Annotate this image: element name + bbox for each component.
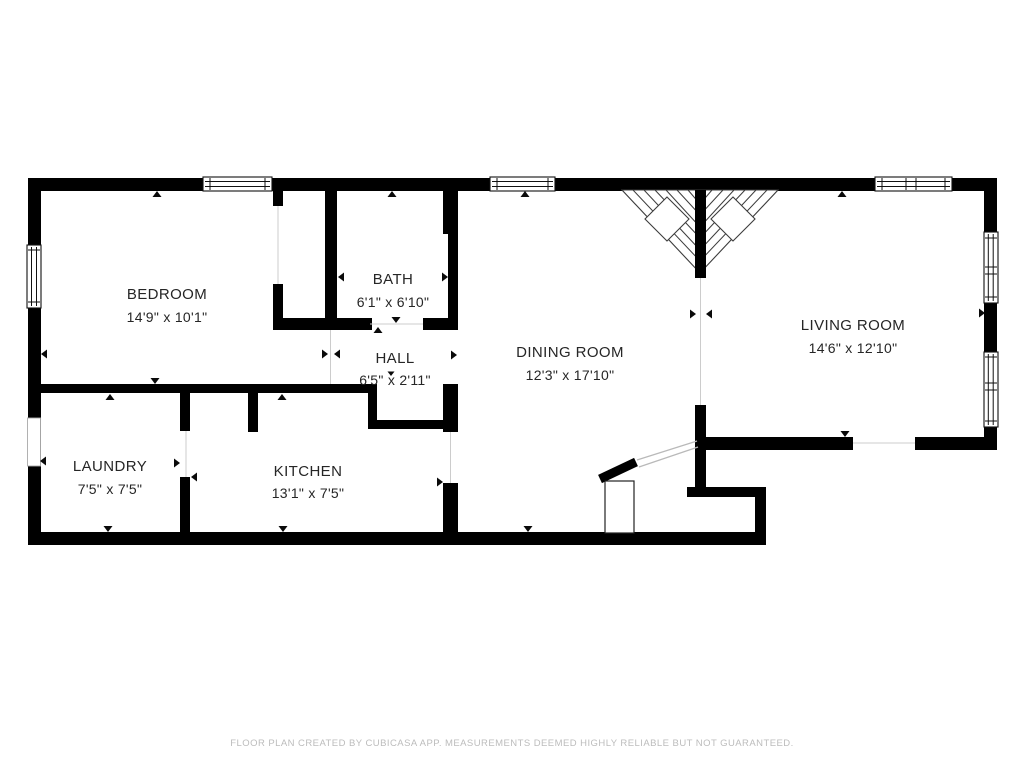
window-living-top <box>875 177 952 191</box>
dimension-arrow <box>374 327 383 333</box>
dimension-arrow <box>338 273 344 282</box>
dimension-arrow <box>278 394 287 400</box>
dimension-arrow <box>442 273 448 282</box>
room-dims: 13'1" x 7'5" <box>272 485 345 501</box>
wall <box>423 318 458 330</box>
wall <box>180 477 190 533</box>
room-dims: 6'5" x 2'11" <box>359 372 431 388</box>
wall <box>443 483 458 533</box>
room-dims: 6'1" x 6'10" <box>357 294 430 310</box>
dimension-arrow <box>191 473 197 482</box>
window-laundry-left <box>28 418 41 466</box>
room-name: LIVING ROOM <box>801 317 905 334</box>
floor-plan-drawing: BEDROOM 14'9" x 10'1" BATH 6'1" x 6'10" … <box>0 0 1024 768</box>
wall <box>273 318 372 330</box>
room-name: DINING ROOM <box>516 344 624 361</box>
room-name: BATH <box>373 271 414 288</box>
dimension-arrow <box>174 459 180 468</box>
dimension-arrow <box>322 350 328 359</box>
wall <box>448 233 458 319</box>
wall <box>325 188 337 330</box>
room-label-laundry: LAUNDRY 7'5" x 7'5" <box>73 458 147 497</box>
wall <box>695 437 853 450</box>
wall <box>443 384 458 432</box>
front-door <box>605 441 698 533</box>
staircase-right-flight <box>700 190 778 273</box>
dimension-arrow <box>392 317 401 323</box>
room-name: LAUNDRY <box>73 458 147 475</box>
room-dims: 12'3" x 17'10" <box>526 367 615 383</box>
dimension-arrow <box>521 191 530 197</box>
dimension-arrow <box>279 526 288 532</box>
wall <box>248 392 258 432</box>
dimension-arrow <box>437 478 443 487</box>
wall <box>755 487 766 538</box>
dimension-arrow <box>388 191 397 197</box>
dimension-arrow <box>106 394 115 400</box>
dimension-arrow <box>153 191 162 197</box>
dimension-arrow <box>41 350 47 359</box>
wall <box>28 178 41 545</box>
room-label-living-room: LIVING ROOM 14'6" x 12'10" <box>801 317 905 356</box>
wall <box>28 532 766 545</box>
room-name: HALL <box>375 350 414 367</box>
wall <box>600 462 636 479</box>
wall <box>28 384 373 393</box>
walls <box>28 178 997 545</box>
wall <box>273 188 283 206</box>
dimension-arrow <box>451 351 457 360</box>
window-bedroom-top <box>203 177 272 191</box>
room-name: BEDROOM <box>127 286 207 303</box>
staircase <box>622 190 778 278</box>
room-dims: 14'6" x 12'10" <box>809 340 898 356</box>
window-dining-top <box>490 177 555 191</box>
room-dims: 7'5" x 7'5" <box>78 481 143 497</box>
room-label-hall: HALL 6'5" x 2'11" <box>359 350 431 388</box>
door-leaf <box>605 481 634 533</box>
dimension-arrow <box>838 191 847 197</box>
window-living-right-upper <box>984 232 998 303</box>
dimension-arrow <box>524 526 533 532</box>
room-name: KITCHEN <box>274 463 343 480</box>
dimension-arrow <box>706 310 712 319</box>
dimension-arrow <box>151 378 160 384</box>
dimension-arrow <box>690 310 696 319</box>
dimension-arrow <box>841 431 850 437</box>
dimension-arrow <box>104 526 113 532</box>
room-label-kitchen: KITCHEN 13'1" x 7'5" <box>272 463 345 501</box>
window-bedroom-left <box>27 245 41 308</box>
wall <box>180 392 190 431</box>
staircase-left-flight <box>622 190 700 273</box>
footer-disclaimer: FLOOR PLAN CREATED BY CUBICASA APP. MEAS… <box>230 738 793 749</box>
wall <box>687 487 766 497</box>
wall <box>443 188 458 234</box>
room-label-bath: BATH 6'1" x 6'10" <box>357 271 430 310</box>
stair-center-wall <box>695 190 706 278</box>
wall <box>915 437 997 450</box>
room-label-bedroom: BEDROOM 14'9" x 10'1" <box>127 286 208 325</box>
wall <box>695 405 706 497</box>
dimension-arrow <box>334 350 340 359</box>
room-dims: 14'9" x 10'1" <box>127 309 208 325</box>
window-living-right-lower <box>984 352 998 427</box>
floor-plan-page: BEDROOM 14'9" x 10'1" BATH 6'1" x 6'10" … <box>0 0 1024 768</box>
room-label-dining-room: DINING ROOM 12'3" x 17'10" <box>516 344 624 383</box>
